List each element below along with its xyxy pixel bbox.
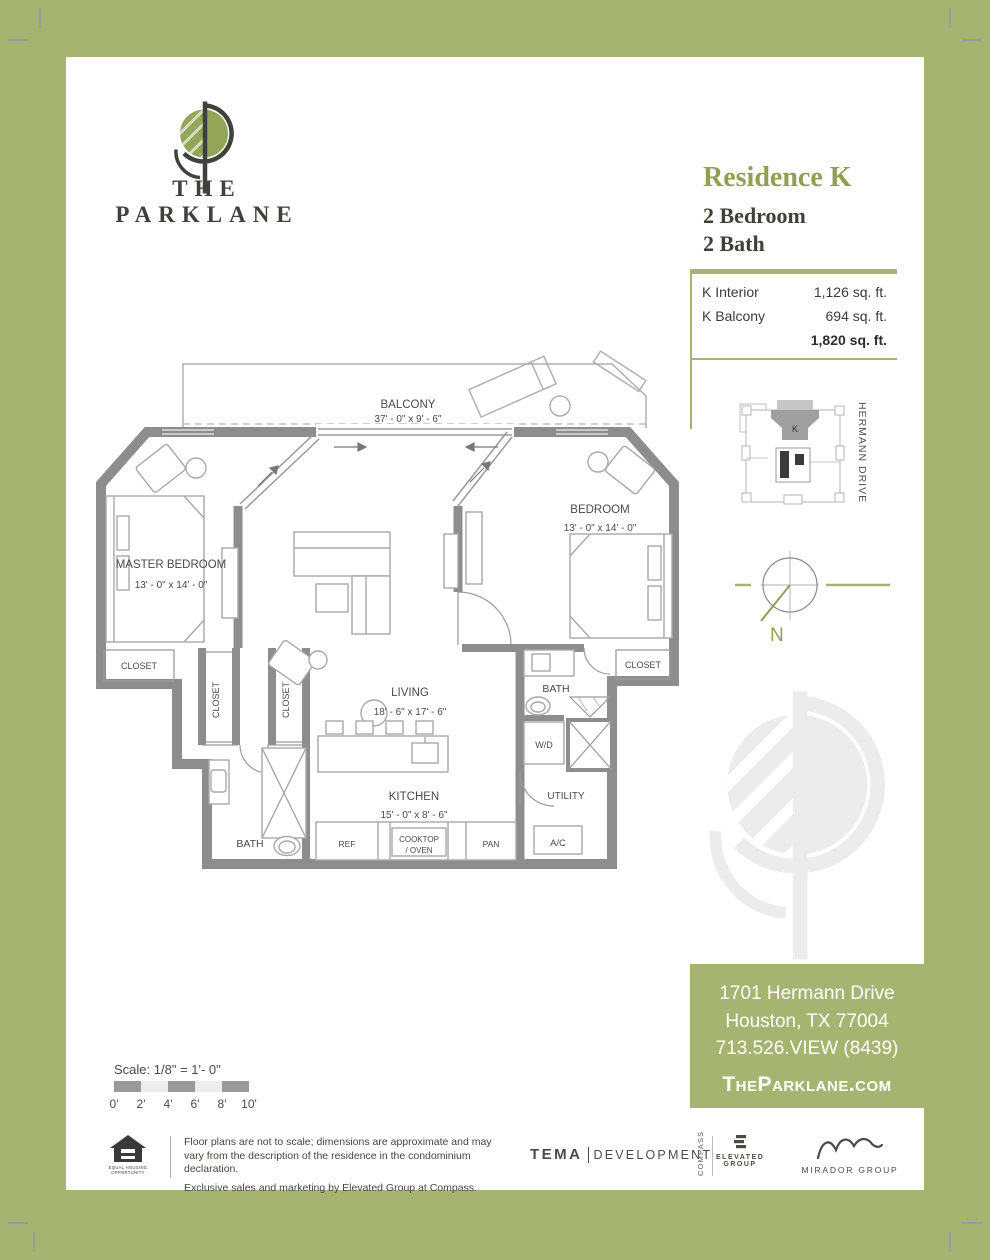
area-value: 694 sq. ft. [826, 308, 887, 324]
balcony-label: BALCONY [381, 399, 436, 411]
brand-wordmark: THE PARKLANE [92, 176, 322, 228]
balcony-dims: 37' - 0" x 9' - 6" [374, 414, 442, 425]
kitchen-label: KITCHEN [389, 791, 439, 803]
closet-label: CLOSET [211, 681, 221, 718]
kitchen-dims: 15' - 0" x 8' - 6" [380, 810, 448, 821]
pantry-label: PAN [483, 839, 500, 849]
scale-tick: 4' [158, 1097, 178, 1111]
elevated-group-icon [733, 1134, 748, 1149]
building-keyplan: K [738, 396, 848, 511]
mirador-group-logo: MIRADOR GROUP [798, 1134, 902, 1175]
utility-label: UTILITY [547, 791, 585, 802]
address-line-2: Houston, TX 77004 [690, 1008, 924, 1036]
footer-divider [170, 1136, 171, 1178]
equal-housing-icon [108, 1134, 148, 1163]
scale-tick: 0' [104, 1097, 124, 1111]
bath-count: 2 Bath [703, 231, 765, 257]
compass-brokerage-logo: COMPASS [696, 1136, 705, 1176]
keyplan-unit-label: K [792, 424, 798, 434]
bedroom-label: BEDROOM [570, 504, 629, 516]
ac-label: A/C [550, 838, 566, 849]
table-row: K Balcony 694 sq. ft. [692, 304, 895, 328]
closet-label: CLOSET [281, 681, 291, 718]
address-line-1: 1701 Hermann Drive [690, 980, 924, 1008]
area-label: K Balcony [702, 308, 765, 324]
table-top-rule [690, 269, 897, 274]
scale-tick: 10' [239, 1097, 259, 1111]
elevated-text-line1: ELEVATED [716, 1154, 764, 1161]
bedroom-count: 2 Bedroom [703, 203, 806, 229]
table-row: K Interior 1,126 sq. ft. [692, 280, 895, 304]
tema-logo: TEMA DEVELOPMENT [530, 1146, 712, 1163]
mirador-text: MIRADOR GROUP [798, 1165, 902, 1175]
disclaimer-line-1: Floor plans are not to scale; dimensions… [184, 1136, 506, 1177]
tema-wordmark-light: DEVELOPMENT [594, 1148, 713, 1162]
living-label: LIVING [391, 687, 429, 699]
cooktop-label: COOKTOP [399, 835, 439, 844]
contact-block: 1701 Hermann Drive Houston, TX 77004 713… [690, 964, 924, 1108]
crop-mark [949, 8, 951, 28]
crop-mark [39, 8, 41, 28]
eho-text-line2: OPPORTUNITY [104, 1170, 152, 1175]
compass: N [730, 548, 900, 648]
crop-mark [8, 1222, 28, 1224]
scale-label: Scale: 1/8" = 1'- 0" [114, 1062, 221, 1077]
keyplan-balcony [777, 400, 813, 410]
closet-label: CLOSET [121, 661, 158, 671]
refrigerator-label: REF [339, 839, 356, 849]
crop-mark [962, 1222, 982, 1224]
disclaimer: Floor plans are not to scale; dimensions… [184, 1136, 506, 1196]
crop-mark [962, 39, 982, 41]
scale-tick: 6' [185, 1097, 205, 1111]
living-dims: 18' - 6" x 17' - 6" [374, 707, 447, 718]
disclaimer-line-2: Exclusive sales and marketing by Elevate… [184, 1182, 506, 1196]
street-label: HERMANN DRIVE [856, 402, 868, 512]
area-value: 1,126 sq. ft. [814, 284, 887, 300]
area-total: 1,820 sq. ft. [692, 328, 895, 352]
bath-label: BATH [542, 683, 569, 695]
bath-label: BATH [236, 838, 263, 850]
phone-number: 713.526.VIEW (8439) [690, 1035, 924, 1063]
oven-label: / OVEN [405, 846, 432, 855]
crop-mark [8, 39, 28, 41]
footer-divider [712, 1136, 713, 1176]
scale-bar [114, 1081, 249, 1092]
tema-wordmark-bold: TEMA [530, 1146, 583, 1163]
scale-tick: 2' [131, 1097, 151, 1111]
closet-label: CLOSET [625, 660, 662, 670]
bedroom-dims: 13' - 0" x 14' - 0" [564, 523, 637, 534]
residence-title: Residence K [703, 162, 852, 194]
scale-tick: 8' [212, 1097, 232, 1111]
area-table: K Interior 1,126 sq. ft. K Balcony 694 s… [692, 280, 895, 352]
compass-needle [761, 585, 790, 621]
area-label: K Interior [702, 284, 759, 300]
elevated-group-logo: ELEVATED GROUP [716, 1134, 764, 1168]
master-bedroom-label: MASTER BEDROOM [116, 559, 227, 571]
crop-mark [949, 1232, 951, 1252]
crop-mark [33, 1232, 35, 1252]
master-bedroom-dims: 13' - 0" x 14' - 0" [135, 580, 208, 591]
floor-plan: BALCONY 37' - 0" x 9' - 6" [90, 350, 740, 885]
washer-dryer-label: W/D [535, 740, 553, 750]
elevated-text-line2: GROUP [716, 1161, 764, 1168]
north-label: N [770, 625, 784, 646]
mirador-script-m-icon [814, 1134, 886, 1160]
website-url: TheParklane.com [690, 1073, 924, 1097]
